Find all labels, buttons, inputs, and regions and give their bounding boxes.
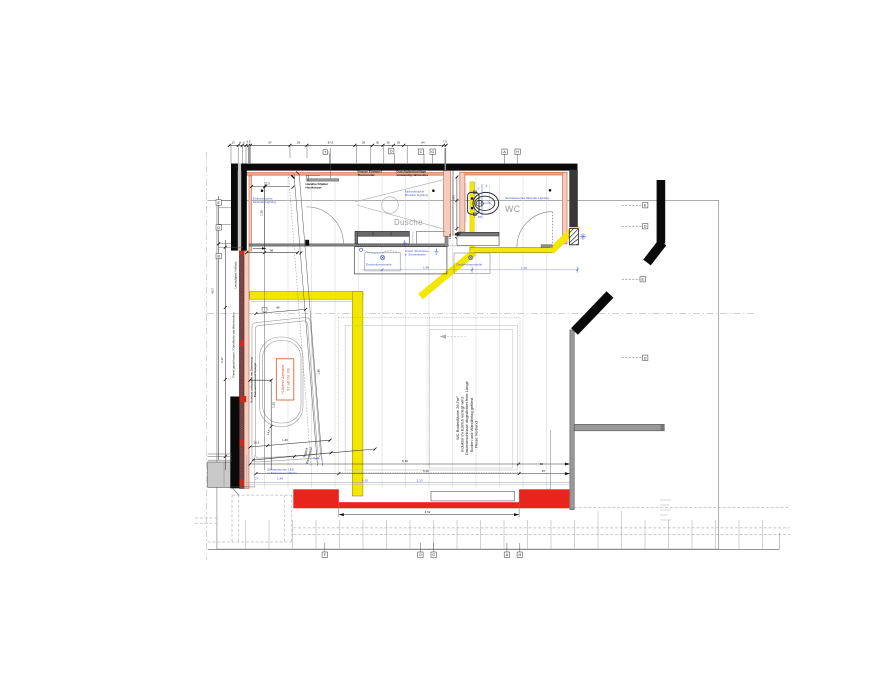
svg-text:D: D xyxy=(217,226,220,230)
svg-text:Umlaufglied Vollholz: Umlaufglied Vollholz xyxy=(234,261,238,289)
svg-text:3: 3 xyxy=(486,184,488,188)
svg-text:in Badewannenfläche: in Badewannenfläche xyxy=(268,471,298,475)
svg-text:4,62: 4,62 xyxy=(425,510,431,514)
svg-text:Dusche: Dusche xyxy=(394,218,423,227)
svg-text:1,78: 1,78 xyxy=(521,266,527,270)
svg-text:einwandig rahmenlos: einwandig rahmenlos xyxy=(397,173,429,177)
svg-text:Modular Lighting: Modular Lighting xyxy=(405,193,428,197)
svg-text:80: 80 xyxy=(540,462,544,466)
svg-text:H: H xyxy=(518,553,521,557)
svg-text:7: 7 xyxy=(324,150,326,154)
svg-text:1,20: 1,20 xyxy=(272,402,276,408)
svg-text:Thermostat: Thermostat xyxy=(358,173,375,177)
svg-text:97 ab OK FB: 97 ab OK FB xyxy=(286,368,291,391)
svg-text:1,93: 1,93 xyxy=(448,233,452,239)
svg-text:D: D xyxy=(644,356,647,360)
svg-text:Ö: Ö xyxy=(390,150,393,154)
svg-text:H Achse Armatur: H Achse Armatur xyxy=(280,364,285,394)
svg-text:20,5: 20,5 xyxy=(254,440,260,444)
svg-text:26: 26 xyxy=(362,141,366,145)
svg-text:Tiefe 7: Tiefe 7 xyxy=(313,457,323,461)
svg-text:30: 30 xyxy=(386,141,390,145)
svg-text:77,5: 77,5 xyxy=(264,182,270,186)
svg-text:45: 45 xyxy=(478,215,482,219)
svg-text:67: 67 xyxy=(268,141,272,145)
svg-text:3,20: 3,20 xyxy=(417,479,423,483)
svg-text:29: 29 xyxy=(297,141,301,145)
svg-text:Heizkörper: Heizkörper xyxy=(306,185,323,189)
svg-text:Modular Lighting: Modular Lighting xyxy=(253,200,276,204)
svg-text:Deckenbrennstelle: Deckenbrennstelle xyxy=(366,262,392,266)
svg-text:2,27: 2,27 xyxy=(220,357,224,363)
svg-text:D: D xyxy=(644,225,647,229)
svg-text:Badewannenrand Spiegel: Badewannenrand Spiegel xyxy=(253,362,257,397)
svg-text:5,12: 5,12 xyxy=(423,469,429,473)
svg-text:64: 64 xyxy=(421,141,425,145)
svg-text:6,5: 6,5 xyxy=(247,140,251,144)
svg-text:C: C xyxy=(420,150,423,154)
svg-text:13: 13 xyxy=(231,141,235,145)
svg-text:1,85: 1,85 xyxy=(316,369,321,375)
svg-text:G: G xyxy=(432,553,435,557)
svg-text:6,35: 6,35 xyxy=(362,479,368,483)
svg-text:Deckenbrennstelle: Deckenbrennstelle xyxy=(457,262,483,266)
svg-text:26: 26 xyxy=(397,141,401,145)
svg-text:Fliese Verbund: Fliese Verbund xyxy=(473,421,478,448)
svg-text:30: 30 xyxy=(376,141,380,145)
svg-text:G: G xyxy=(431,150,434,154)
svg-text:7,5: 7,5 xyxy=(443,140,447,144)
svg-text:87,5: 87,5 xyxy=(328,141,334,145)
svg-text:5: 5 xyxy=(478,187,480,191)
svg-text:27: 27 xyxy=(255,477,259,481)
svg-text:98: 98 xyxy=(270,248,274,252)
svg-text:in Schrankseite: in Schrankseite xyxy=(405,253,426,257)
svg-text:1,88: 1,88 xyxy=(423,266,429,270)
svg-text:1,04: 1,04 xyxy=(452,195,456,201)
svg-text:1,46: 1,46 xyxy=(282,438,288,442)
svg-text:Panel geschlossen / Oberfläche: Panel geschlossen / Oberfläche wie Bleiv… xyxy=(232,312,236,377)
svg-text:O: O xyxy=(419,553,422,557)
svg-text:43,5: 43,5 xyxy=(211,288,215,294)
svg-text:WC: WC xyxy=(505,204,521,214)
svg-text:1,48: 1,48 xyxy=(277,477,283,481)
svg-text:87: 87 xyxy=(542,469,546,473)
svg-text:86: 86 xyxy=(276,306,280,310)
svg-text:H: H xyxy=(516,150,519,154)
svg-text:5,30: 5,30 xyxy=(402,459,408,463)
svg-text:Einbauleuchte Modular Lighting: Einbauleuchte Modular Lighting xyxy=(506,196,550,200)
svg-text:1,50: 1,50 xyxy=(260,210,264,216)
